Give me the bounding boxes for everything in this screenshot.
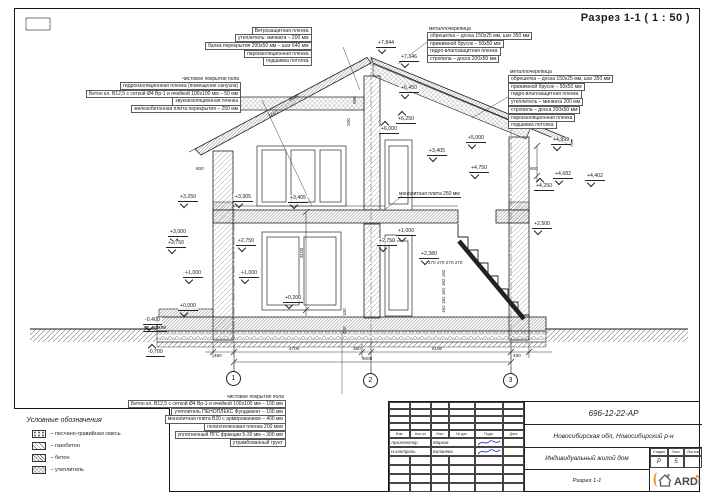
title-block-cell bbox=[475, 474, 503, 483]
title-block-cell bbox=[503, 438, 524, 447]
title-block-cell bbox=[503, 409, 524, 416]
title-block-cell: Изм. bbox=[389, 430, 410, 438]
stage-cell: Стадия bbox=[650, 448, 668, 456]
title-block-cell bbox=[410, 402, 431, 409]
title-block-cell bbox=[431, 409, 449, 416]
elevation-value: +2,750 bbox=[166, 240, 186, 248]
elevation-value: -0,700 bbox=[146, 349, 165, 357]
elevation-mark: +6,000 bbox=[379, 126, 399, 134]
project-location: Новосибирская обл, Новосибирский р-н bbox=[525, 425, 702, 448]
annotation-line: подшивка потолка bbox=[263, 57, 312, 65]
elevation-value: +5,000 bbox=[466, 135, 486, 143]
elevation-mark: +7,346 bbox=[399, 54, 419, 62]
elevation-value: +4,682 bbox=[553, 171, 573, 179]
elevation-value: +6,250 bbox=[396, 116, 416, 124]
title-block-cell bbox=[389, 402, 410, 409]
title-block-cell bbox=[475, 447, 503, 456]
title-block-cell bbox=[431, 423, 449, 430]
title-block-cell bbox=[475, 456, 503, 465]
title-block-cell bbox=[410, 423, 431, 430]
format-box bbox=[26, 18, 50, 30]
title-block-cell bbox=[503, 447, 524, 456]
title-block-cell: Н.контроль bbox=[389, 447, 431, 456]
gas-swatch-icon bbox=[32, 442, 46, 450]
axis-bubble-1: 1 bbox=[226, 371, 241, 386]
elevation-value: +3,000 bbox=[168, 229, 188, 237]
elevation-value: +0,000 bbox=[178, 303, 198, 311]
title-block-cell bbox=[389, 423, 410, 430]
elevation-value: +3,405 bbox=[288, 195, 308, 203]
logo-dot bbox=[696, 474, 699, 477]
title-block-cell bbox=[449, 416, 475, 423]
elevation-value: -0,400 bbox=[143, 317, 162, 325]
elevation-value: +2,500 bbox=[532, 221, 552, 229]
dimension-label: 600 bbox=[530, 166, 538, 171]
elevation-mark: +2,380 bbox=[419, 251, 439, 259]
signature-scribble bbox=[477, 448, 501, 456]
title-block-cell bbox=[410, 465, 431, 474]
axis-bubble-3: 3 bbox=[503, 373, 518, 388]
dimension-label: 6180 bbox=[432, 346, 442, 351]
title-block-cell bbox=[475, 438, 503, 447]
title-block-cell bbox=[503, 456, 524, 465]
title-block-cell bbox=[475, 465, 503, 474]
elevation-mark: +4,750 bbox=[469, 165, 489, 173]
elevation-mark: +6,250 bbox=[396, 116, 416, 124]
elevation-value: +3,250 bbox=[178, 194, 198, 202]
elevation-mark: +4,682 bbox=[553, 171, 573, 179]
elevation-mark: +2,750 bbox=[236, 238, 256, 246]
dimension-label: 996 bbox=[352, 96, 357, 104]
title-block-cell bbox=[389, 456, 410, 465]
title-block-cell bbox=[431, 483, 449, 492]
elevation-value: +6,000 bbox=[379, 126, 399, 134]
elevation-mark: +3,305 bbox=[233, 194, 253, 202]
dimension-label: 3100 bbox=[299, 248, 304, 258]
stage-cell: 5 bbox=[668, 456, 684, 468]
elevation-value: +2,380 bbox=[419, 251, 439, 259]
elevation-value: +4,250 bbox=[534, 183, 554, 191]
elevation-value: +1,000 bbox=[239, 270, 259, 278]
elevation-mark: +1,000 bbox=[239, 270, 259, 278]
drawing-title: Разрез 1-1 ( 1 : 50 ) bbox=[581, 12, 690, 24]
logo-house-icon bbox=[659, 475, 671, 486]
dimension-label: 200 bbox=[346, 118, 351, 126]
title-block-cell: Кол.уч bbox=[410, 430, 431, 438]
ardi-logo: ARDi bbox=[650, 468, 702, 491]
title-block-cell bbox=[503, 402, 524, 409]
title-block-cell bbox=[449, 402, 475, 409]
pgs-swatch-icon bbox=[32, 430, 46, 438]
annotation-block-floor-ground: чистовое покрытие полаБетон кл. В12,5 с … bbox=[128, 394, 286, 447]
dimension-label: 100 bbox=[342, 308, 347, 316]
sheet-name: Разрез 1-1 bbox=[525, 470, 649, 491]
elevation-value: +3,405 bbox=[427, 148, 447, 156]
elevation-mark: +6,450 bbox=[399, 85, 419, 93]
title-block: Изм.Кол.учЛист№ док.Подп.ДатаАрхитекторМ… bbox=[388, 401, 700, 492]
elevation-mark: +3,405 bbox=[427, 148, 447, 156]
title-block-cell bbox=[449, 465, 475, 474]
elevation-value: +6,450 bbox=[399, 85, 419, 93]
title-block-cell bbox=[431, 465, 449, 474]
stage-table: СтадияЛистЛистовР5 bbox=[650, 448, 702, 468]
signature-scribble bbox=[477, 439, 501, 447]
logo-leaf-icon bbox=[654, 472, 657, 487]
elevation-value: +4,999 bbox=[551, 137, 571, 145]
dimension-label: 4700 bbox=[289, 346, 299, 351]
elevation-mark: +5,000 bbox=[466, 135, 486, 143]
title-block-cell: Баланева bbox=[431, 447, 475, 456]
title-block-cell bbox=[431, 416, 449, 423]
title-block-cell bbox=[449, 483, 475, 492]
dimension-label: 480 bbox=[214, 353, 222, 358]
title-block-cell bbox=[410, 483, 431, 492]
concrete-swatch-icon bbox=[32, 454, 46, 462]
stage-cell: Р bbox=[650, 456, 668, 468]
annotation-line: утрамбованный грунт bbox=[230, 439, 286, 447]
stage-cell: Лист bbox=[668, 448, 684, 456]
elevation-value: +1,000 bbox=[396, 228, 416, 236]
legend-label: – бетон bbox=[50, 455, 69, 461]
dimension-label: 9000 bbox=[362, 356, 372, 361]
title-block-cell: Дата bbox=[503, 430, 524, 438]
project-name: Индивидуальный жилой дом bbox=[525, 448, 649, 470]
legend-label: – песчано-гравийная смесь bbox=[50, 431, 120, 437]
title-block-cell: Подп. bbox=[475, 430, 503, 438]
axis-bubble-2: 2 bbox=[363, 373, 378, 388]
title-block-cell bbox=[503, 474, 524, 483]
elevation-value: +3,305 bbox=[233, 194, 253, 202]
elevation-value: +4,750 bbox=[469, 165, 489, 173]
drawing-sheet: Разрез 1-1 ( 1 : 50 ) Условные обозначен… bbox=[0, 0, 710, 502]
stage-cell: Листов bbox=[684, 448, 702, 456]
annotation-block-roof-cold: металлочерепицаобрешетка – доска 150х25 … bbox=[427, 26, 532, 63]
elevation-value: +0,200 bbox=[283, 295, 303, 303]
title-block-cell bbox=[410, 474, 431, 483]
ceiling-insulation bbox=[233, 97, 364, 110]
openings bbox=[257, 140, 412, 316]
annotation-block-roof-warm: металлочерепицаобрешетка – доска 150х25 … bbox=[508, 69, 613, 129]
drawing-label: монолитная плита 250 мм bbox=[398, 191, 461, 198]
title-block-cell bbox=[449, 456, 475, 465]
title-block-cell bbox=[503, 423, 524, 430]
dimension-label: 480 bbox=[513, 353, 521, 358]
elevation-mark: +4,402 bbox=[585, 173, 605, 181]
elevation-mark: +3,000 bbox=[168, 229, 188, 237]
elevation-mark: +0,000 bbox=[178, 303, 198, 311]
title-block-cell bbox=[389, 465, 410, 474]
elevation-value: +7,844 bbox=[376, 40, 396, 48]
title-block-cell: Архитектор bbox=[389, 438, 431, 447]
annotation-block-floor-2nd: чистовое покрытие полагидроизоляционная … bbox=[86, 76, 241, 113]
title-block-cell bbox=[475, 483, 503, 492]
elevation-mark: +2,750 bbox=[166, 240, 186, 248]
document-code: 696-12-22-АР bbox=[525, 402, 702, 425]
annotation-block-ceiling-left: Ветрозащитная пленкаутеплитель: минвата … bbox=[205, 27, 312, 66]
elevation-mark: +3,405 bbox=[288, 195, 308, 203]
legend-label: – утеплитель bbox=[50, 467, 84, 473]
elevation-mark: +2,500 bbox=[532, 221, 552, 229]
dimension-label: 400 bbox=[342, 326, 347, 334]
legend-label: – газобетон bbox=[50, 443, 80, 449]
title-block-cell bbox=[475, 423, 503, 430]
elevation-value: +7,346 bbox=[399, 54, 419, 62]
dimension-label: 162 162 162 162 162 bbox=[441, 270, 446, 313]
title-block-signatures: Изм.Кол.учЛист№ док.Подп.ДатаАрхитекторМ… bbox=[389, 402, 524, 491]
drawing-label: ур. земли bbox=[143, 325, 167, 332]
stage-cell bbox=[684, 456, 702, 468]
elevation-mark: +3,250 bbox=[178, 194, 198, 202]
title-block-cell bbox=[449, 423, 475, 430]
elevation-value: +1,000 bbox=[183, 270, 203, 278]
elevation-mark: +0,200 bbox=[283, 295, 303, 303]
elevation-mark: +4,250 bbox=[534, 183, 554, 191]
title-block-cell bbox=[475, 402, 503, 409]
dimension-label: 380 bbox=[353, 346, 361, 351]
title-block-cell bbox=[410, 416, 431, 423]
title-block-cell bbox=[503, 483, 524, 492]
title-block-cell bbox=[475, 409, 503, 416]
title-block-cell: Лист bbox=[431, 430, 449, 438]
elevation-value: +2,750 bbox=[236, 238, 256, 246]
dimension-label: 600 bbox=[196, 166, 204, 171]
legend-item: – бетон bbox=[32, 454, 169, 462]
elevation-value: +4,402 bbox=[585, 173, 605, 181]
elevation-mark: +1,000 bbox=[396, 228, 416, 236]
annotation-line: железобетонная плита перекрытия – 250 мм bbox=[131, 105, 241, 113]
annotation-line: подшивка потолка bbox=[508, 121, 557, 129]
elevation-mark: -0,400 bbox=[143, 317, 162, 325]
legend-item: – утеплитель bbox=[32, 466, 169, 474]
logo-text: ARDi bbox=[674, 476, 701, 488]
title-block-cell: Марков bbox=[431, 438, 475, 447]
title-block-cell bbox=[431, 474, 449, 483]
title-block-main: 696-12-22-АР Новосибирская обл, Новосиби… bbox=[524, 402, 702, 491]
title-block-cell bbox=[431, 456, 449, 465]
title-block-cell bbox=[475, 416, 503, 423]
dimension-label: 270 270 270 270 bbox=[428, 260, 463, 265]
title-block-cell bbox=[389, 416, 410, 423]
title-block-cell bbox=[503, 416, 524, 423]
insulation-swatch-icon bbox=[32, 466, 46, 474]
title-block-cell bbox=[431, 402, 449, 409]
title-block-cell bbox=[410, 456, 431, 465]
elevation-mark: +7,844 bbox=[376, 40, 396, 48]
elevation-mark: +1,000 bbox=[183, 270, 203, 278]
title-block-cell bbox=[449, 474, 475, 483]
elevation-mark: +4,999 bbox=[551, 137, 571, 145]
title-block-cell bbox=[503, 465, 524, 474]
title-block-cell bbox=[410, 409, 431, 416]
title-block-cell bbox=[449, 409, 475, 416]
elevation-mark: -0,700 bbox=[146, 349, 165, 357]
elevation-mark: +2,750 bbox=[377, 238, 397, 246]
title-block-cell bbox=[389, 409, 410, 416]
title-block-cell bbox=[389, 483, 410, 492]
annotation-line: стропила – доска 200х50 мм bbox=[427, 55, 499, 63]
elevation-value: +2,750 bbox=[377, 238, 397, 246]
title-block-cell bbox=[389, 474, 410, 483]
title-block-cell: № док. bbox=[449, 430, 475, 438]
